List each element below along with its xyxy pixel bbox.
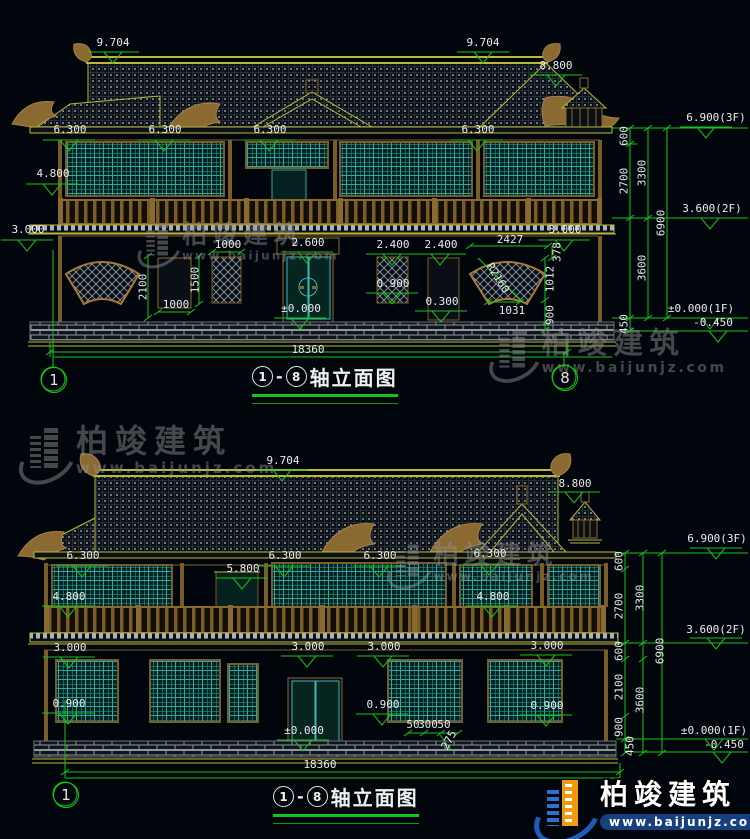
title-dash: - — [276, 367, 283, 386]
watermark-name: 柏竣建筑 — [542, 328, 727, 359]
watermark: 柏竣建筑www.baijunjz.com — [140, 222, 339, 262]
title-dash: - — [297, 787, 304, 806]
brand-name: 柏竣建筑 — [600, 780, 750, 811]
watermark: 柏竣建筑www.baijunjz.com — [492, 328, 727, 375]
title-axis-end: 8 — [286, 366, 307, 387]
title-axis-start: 1 — [252, 366, 273, 387]
watermark: 柏竣建筑www.baijunjz.com — [22, 425, 277, 477]
axis-bubble-1-d2: 1 — [53, 782, 79, 808]
cad-elevation-sheet: 柏竣建筑www.baijunjz.com 柏竣建筑www.baijunjz.co… — [0, 0, 750, 839]
title-text: 轴立面图 — [310, 362, 398, 391]
watermark-logo-icon — [22, 426, 66, 476]
drawing1-building — [12, 44, 619, 346]
brand-logo: 柏竣建筑www.baijunjz.com — [538, 776, 750, 834]
axis-bubble-1-d1: 1 — [41, 367, 67, 393]
figure-title-d1: 1 - 8 轴立面图 — [252, 362, 398, 404]
watermark-url: www.baijunjz.com — [76, 459, 277, 477]
watermark-name: 柏竣建筑 — [182, 222, 339, 248]
brand-url: www.baijunjz.com — [600, 814, 750, 830]
title-axis-start: 1 — [273, 786, 294, 807]
watermark-url: www.baijunjz.com — [433, 569, 594, 583]
title-underline — [273, 814, 419, 824]
cupola-d2 — [568, 492, 602, 543]
watermark-url: www.baijunjz.com — [182, 248, 339, 262]
watermark-name: 柏竣建筑 — [433, 542, 594, 569]
drawing2-building — [18, 454, 620, 763]
watermark-logo-icon — [140, 223, 174, 262]
axis-bubble-8-d1: 8 — [552, 365, 578, 391]
title-underline — [252, 394, 398, 404]
title-text: 轴立面图 — [331, 782, 419, 811]
figure-title-d2: 1 - 8 轴立面图 — [273, 782, 419, 824]
watermark: 柏竣建筑www.baijunjz.com — [390, 542, 594, 583]
elevation-drawing-canvas — [0, 0, 750, 839]
watermark-logo-icon — [390, 543, 425, 583]
watermark-name: 柏竣建筑 — [76, 425, 277, 459]
watermark-logo-icon — [492, 329, 532, 375]
title-axis-end: 8 — [307, 786, 328, 807]
brand-logo-icon — [538, 776, 590, 834]
